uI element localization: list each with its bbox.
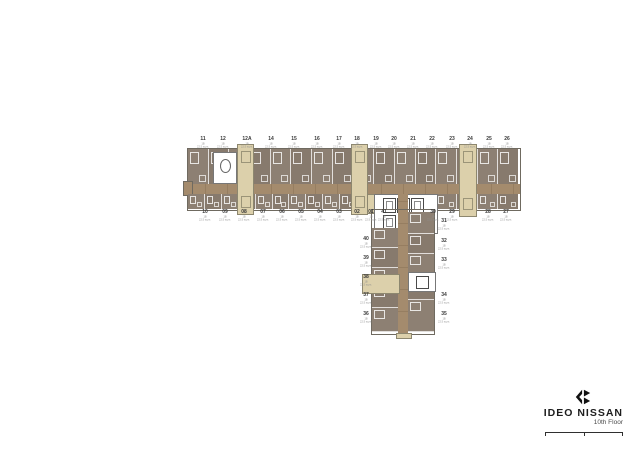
unit-label: 401B22.5 sq.m. xyxy=(359,237,373,249)
unit-cell xyxy=(436,194,457,209)
unit-label: 261B22.5 sq.m. xyxy=(500,137,514,149)
unit-label: 141B22.5 sq.m. xyxy=(264,137,278,149)
unit-label: 311B22.5 sq.m. xyxy=(437,219,451,231)
unit-label: 331B22.5 sq.m. xyxy=(437,258,451,270)
unit-label: 181B22.5 sq.m. xyxy=(350,137,364,149)
unit-label: 241B22.5 sq.m. xyxy=(463,137,477,149)
unit-label: 021B22.5 sq.m. xyxy=(350,210,364,222)
unit-cell xyxy=(478,149,499,184)
unit-label: 111B22.5 sq.m. xyxy=(196,137,210,149)
unit-cell xyxy=(395,149,416,184)
unit-label: 171B22.5 sq.m. xyxy=(332,137,346,149)
unit-cell xyxy=(291,149,312,184)
unit-label: 121B22.5 sq.m. xyxy=(216,137,230,149)
unit-cell xyxy=(408,234,434,254)
unit-cell xyxy=(416,149,437,184)
floor-label: 10th Floor xyxy=(530,419,623,426)
unit-cell xyxy=(205,194,222,209)
unit-label: 321B22.5 sq.m. xyxy=(437,239,451,251)
unit-label: 161B22.5 sq.m. xyxy=(310,137,324,149)
unit-label: 041B22.5 sq.m. xyxy=(313,210,327,222)
unit-cell xyxy=(273,194,290,209)
brand-logo-icon xyxy=(574,388,592,406)
wing-bottom-stub xyxy=(396,333,412,339)
unit-cell xyxy=(289,194,306,209)
brand-name: IDEO NISSAN xyxy=(530,407,623,419)
unit-label: 411B22.5 sq.m. xyxy=(377,210,391,222)
unit-cell xyxy=(478,194,499,209)
unit-cell xyxy=(256,194,273,209)
unit-label: 191B22.5 sq.m. xyxy=(369,137,383,149)
utility-room xyxy=(213,152,237,184)
unit-label: 341B22.5 sq.m. xyxy=(437,293,451,305)
unit-label: 221B22.5 sq.m. xyxy=(425,137,439,149)
unit-label: 211B22.5 sq.m. xyxy=(406,137,420,149)
unit-label: 281B22.5 sq.m. xyxy=(481,210,495,222)
unit-label: 351B22.5 sq.m. xyxy=(437,312,451,324)
unit-label: 271B22.5 sq.m. xyxy=(499,210,513,222)
stair-tower-icon xyxy=(237,144,254,215)
unit-label: 051B22.5 sq.m. xyxy=(294,210,308,222)
unit-label: 011B22.5 sq.m. xyxy=(364,210,378,222)
unit-label: 361B22.5 sq.m. xyxy=(359,312,373,324)
unit-cell xyxy=(498,194,518,209)
scale-bar xyxy=(545,432,623,437)
unit-label: 151B22.5 sq.m. xyxy=(287,137,301,149)
wing-elevator-room xyxy=(408,272,436,292)
toilet-icon xyxy=(220,159,231,173)
stair-tower-icon xyxy=(459,144,477,217)
unit-label: 381B22.5 sq.m. xyxy=(359,275,373,287)
unit-label: 391B22.5 sq.m. xyxy=(359,256,373,268)
unit-cell xyxy=(372,248,398,268)
floor-plan-canvas: 111B22.5 sq.m.121B22.5 sq.m.12A1B22.5 sq… xyxy=(0,0,640,452)
unit-cell xyxy=(436,149,457,184)
bottom-unit-band-left xyxy=(188,194,356,209)
elevator-icon xyxy=(416,276,429,289)
unit-cell xyxy=(188,149,209,184)
unit-label: 371B22.5 sq.m. xyxy=(359,293,373,305)
title-block: IDEO NISSAN 10th Floor xyxy=(530,388,628,438)
unit-cell xyxy=(374,149,395,184)
unit-cell xyxy=(372,228,398,248)
unit-cell xyxy=(372,308,398,332)
unit-cell xyxy=(408,300,434,332)
unit-cell xyxy=(312,149,333,184)
unit-label: 061B22.5 sq.m. xyxy=(275,210,289,222)
unit-cell xyxy=(323,194,340,209)
unit-label: 231B22.5 sq.m. xyxy=(445,137,459,149)
unit-label: 101B22.5 sq.m. xyxy=(198,210,212,222)
unit-cell xyxy=(271,149,292,184)
unit-label: 031B22.5 sq.m. xyxy=(332,210,346,222)
unit-cell xyxy=(498,149,518,184)
unit-cell xyxy=(306,194,323,209)
unit-label: 071B22.5 sq.m. xyxy=(256,210,270,222)
bottom-unit-band-right xyxy=(436,194,518,209)
unit-cell xyxy=(188,194,205,209)
unit-cell xyxy=(408,254,434,272)
unit-label: 201B22.5 sq.m. xyxy=(387,137,401,149)
unit-label: 12A1B22.5 sq.m. xyxy=(240,137,254,149)
unit-label: 251B22.5 sq.m. xyxy=(482,137,496,149)
unit-label: 091B22.5 sq.m. xyxy=(218,210,232,222)
stair-tower-icon xyxy=(351,144,368,215)
unit-label: 081B22.5 sq.m. xyxy=(237,210,251,222)
